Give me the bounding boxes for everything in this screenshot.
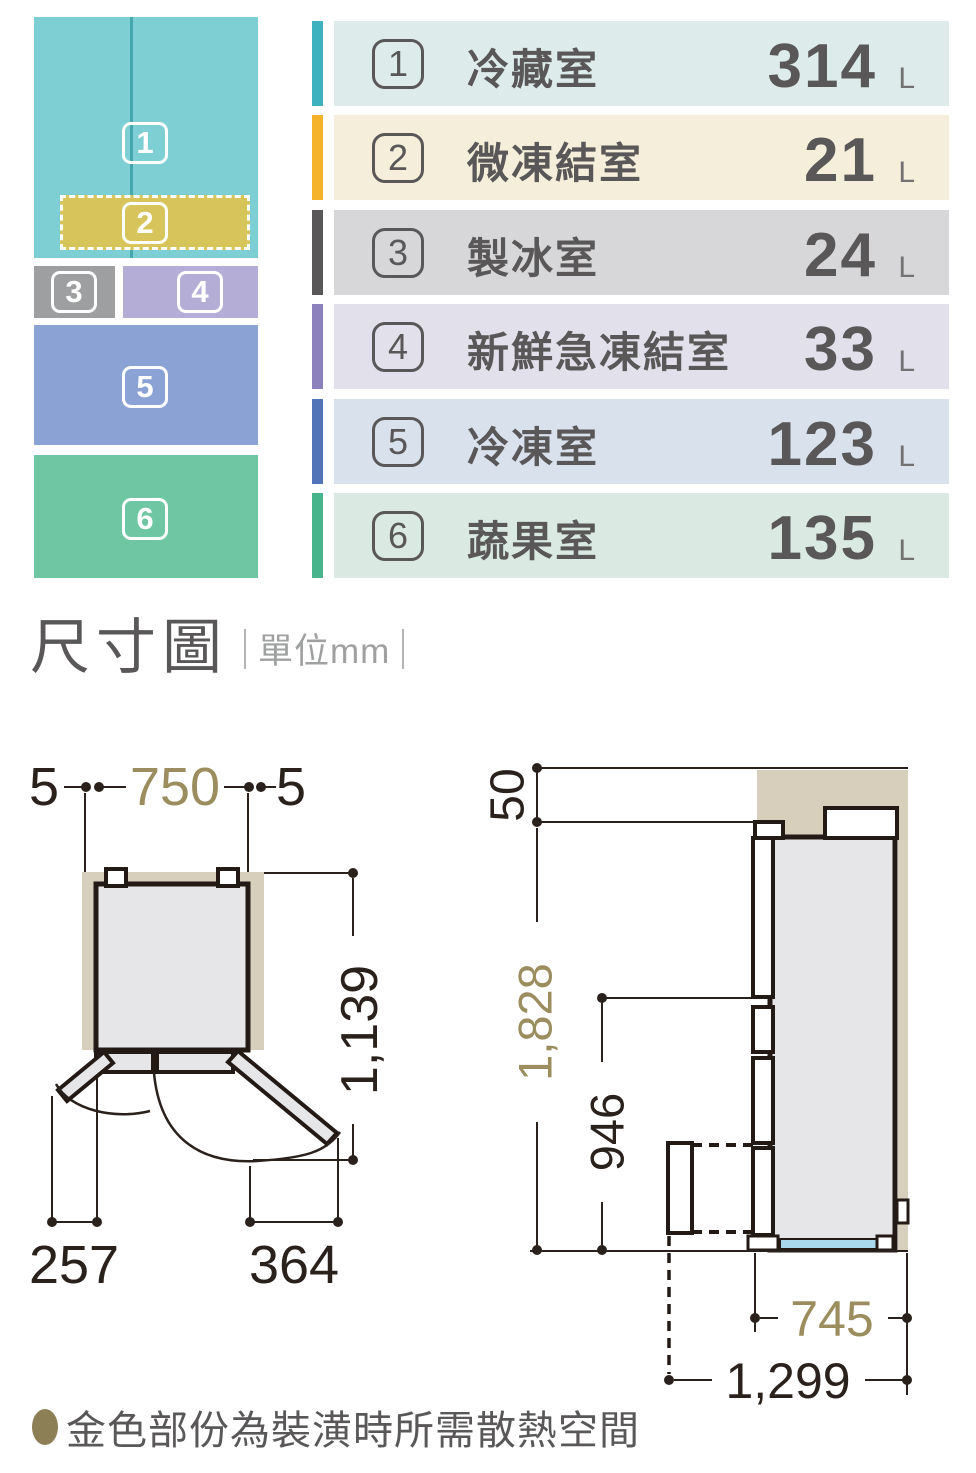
legend-number-badge: 3 [372,228,424,278]
compartment-name: 製冰室 [467,224,599,285]
dim-top-clearance: 50 [482,768,535,821]
legend-accent-bar [312,493,323,578]
compartment-badge-1: 1 [122,122,168,164]
legend-number-badge: 4 [372,322,424,372]
legend-row-background: 1 冷藏室 314 L [334,21,949,106]
volume-unit: L [898,64,915,94]
legend-row-background: 3 製冰室 24 L [334,210,949,295]
legend-row-3: 3 製冰室 24 L [312,210,949,295]
legend-number-badge: 5 [372,417,424,467]
legend-row-2: 2 微凍結室 21 L [312,115,949,200]
compartment-badge-2: 2 [122,202,168,244]
front-top-view-drawing: 5 750 5 1,139 257 364 [20,740,440,1300]
unit-note: 單位mm [244,623,404,674]
legend-row-1: 1 冷藏室 314 L [312,21,949,106]
dim-width: 750 [130,757,220,817]
heat-clearance-back [898,837,908,1252]
compartment-badge-3: 3 [51,271,97,313]
fridge-body-top-view [96,884,248,1050]
compartment-name: 蔬果室 [467,507,599,568]
hinge-left [106,869,126,886]
dim-drawer-height: 946 [581,1093,634,1171]
compartment-name: 冷藏室 [467,35,599,96]
unit-label: 單位mm [258,623,390,674]
legend-row-background: 5 冷凍室 123 L [334,399,949,484]
legend-accent-bar [312,21,323,106]
hinge-right [218,869,238,886]
gold-bullet-icon [32,1409,58,1445]
compartment-volume: 24 [804,225,877,287]
volume-unit: L [898,158,915,188]
dim-depth: 745 [790,1291,873,1347]
fridge-compartment-diagram: 1 2 3 4 5 6 [0,0,300,600]
legend-row-4: 4 新鮮急凍結室 33 L [312,304,949,389]
legend-accent-bar [312,210,323,295]
volume-unit: L [898,442,915,472]
compartment-name: 新鮮急凍結室 [467,318,731,379]
legend-accent-bar [312,304,323,389]
compartment-volume: 33 [804,319,877,381]
dim-right-door-swing: 364 [249,1235,339,1295]
compartment-badge-5: 5 [122,366,168,408]
volume-unit: L [898,536,915,566]
legend-number-badge: 1 [372,39,424,89]
footnote: 金色部份為裝潢時所需散熱空間 [32,1398,640,1456]
door-front-right [157,1052,233,1072]
compartment-badge-6: 6 [122,498,168,540]
legend-row-6: 6 蔬果室 135 L [312,493,949,578]
legend-number-badge: 2 [372,133,424,183]
divider-bar [244,629,246,669]
volume-unit: L [898,347,915,377]
compartment-volume: 123 [768,414,877,476]
dim-open-depth: 1,299 [725,1353,850,1409]
door-top-hinge-cover [755,822,783,838]
compartment-name: 冷凍室 [467,413,599,474]
page: 1 2 3 4 5 6 1 冷藏室 314 L 2 微凍結室 21 L 3 製冰… [0,0,976,1473]
compartment-name: 微凍結室 [467,129,643,190]
front-foot [748,1236,778,1250]
open-drawer-projection [668,1143,753,1374]
legend-row-background: 4 新鮮急凍結室 33 L [334,304,949,389]
section-title: 尺寸圖 [30,618,228,678]
compartment-badge-4: 4 [177,271,223,313]
dim-height: 1,828 [509,963,562,1081]
base-blue-strip [780,1239,877,1249]
legend-row-background: 2 微凍結室 21 L [334,115,949,200]
divider-bar [402,629,404,669]
door-front-segments [753,838,773,1235]
open-door-right [228,1051,337,1144]
legend-row-5: 5 冷凍室 123 L [312,399,949,484]
dim-left-door-swing: 257 [29,1235,119,1295]
wall-outlet-box [897,1200,908,1223]
compartment-volume: 314 [768,36,877,98]
legend-number-badge: 6 [372,511,424,561]
dimension-section-header: 尺寸圖 單位mm [30,618,404,678]
fridge-body-side-view [770,837,895,1250]
side-view-drawing: 50 1,828 946 745 1,299 [460,740,930,1420]
legend-accent-bar [312,399,323,484]
legend-row-background: 6 蔬果室 135 L [334,493,949,578]
rear-foot [877,1236,893,1250]
dim-side-gap-left: 5 [29,757,59,817]
volume-unit: L [898,253,915,283]
top-rear-step [825,808,897,838]
dim-side-gap-right: 5 [276,757,306,817]
dim-open-depth: 1,139 [331,965,389,1095]
footnote-text: 金色部份為裝潢時所需散熱空間 [66,1398,640,1456]
legend-accent-bar [312,115,323,200]
compartment-volume: 135 [768,508,877,570]
open-door-left [58,1052,113,1101]
compartment-volume: 21 [804,130,877,192]
